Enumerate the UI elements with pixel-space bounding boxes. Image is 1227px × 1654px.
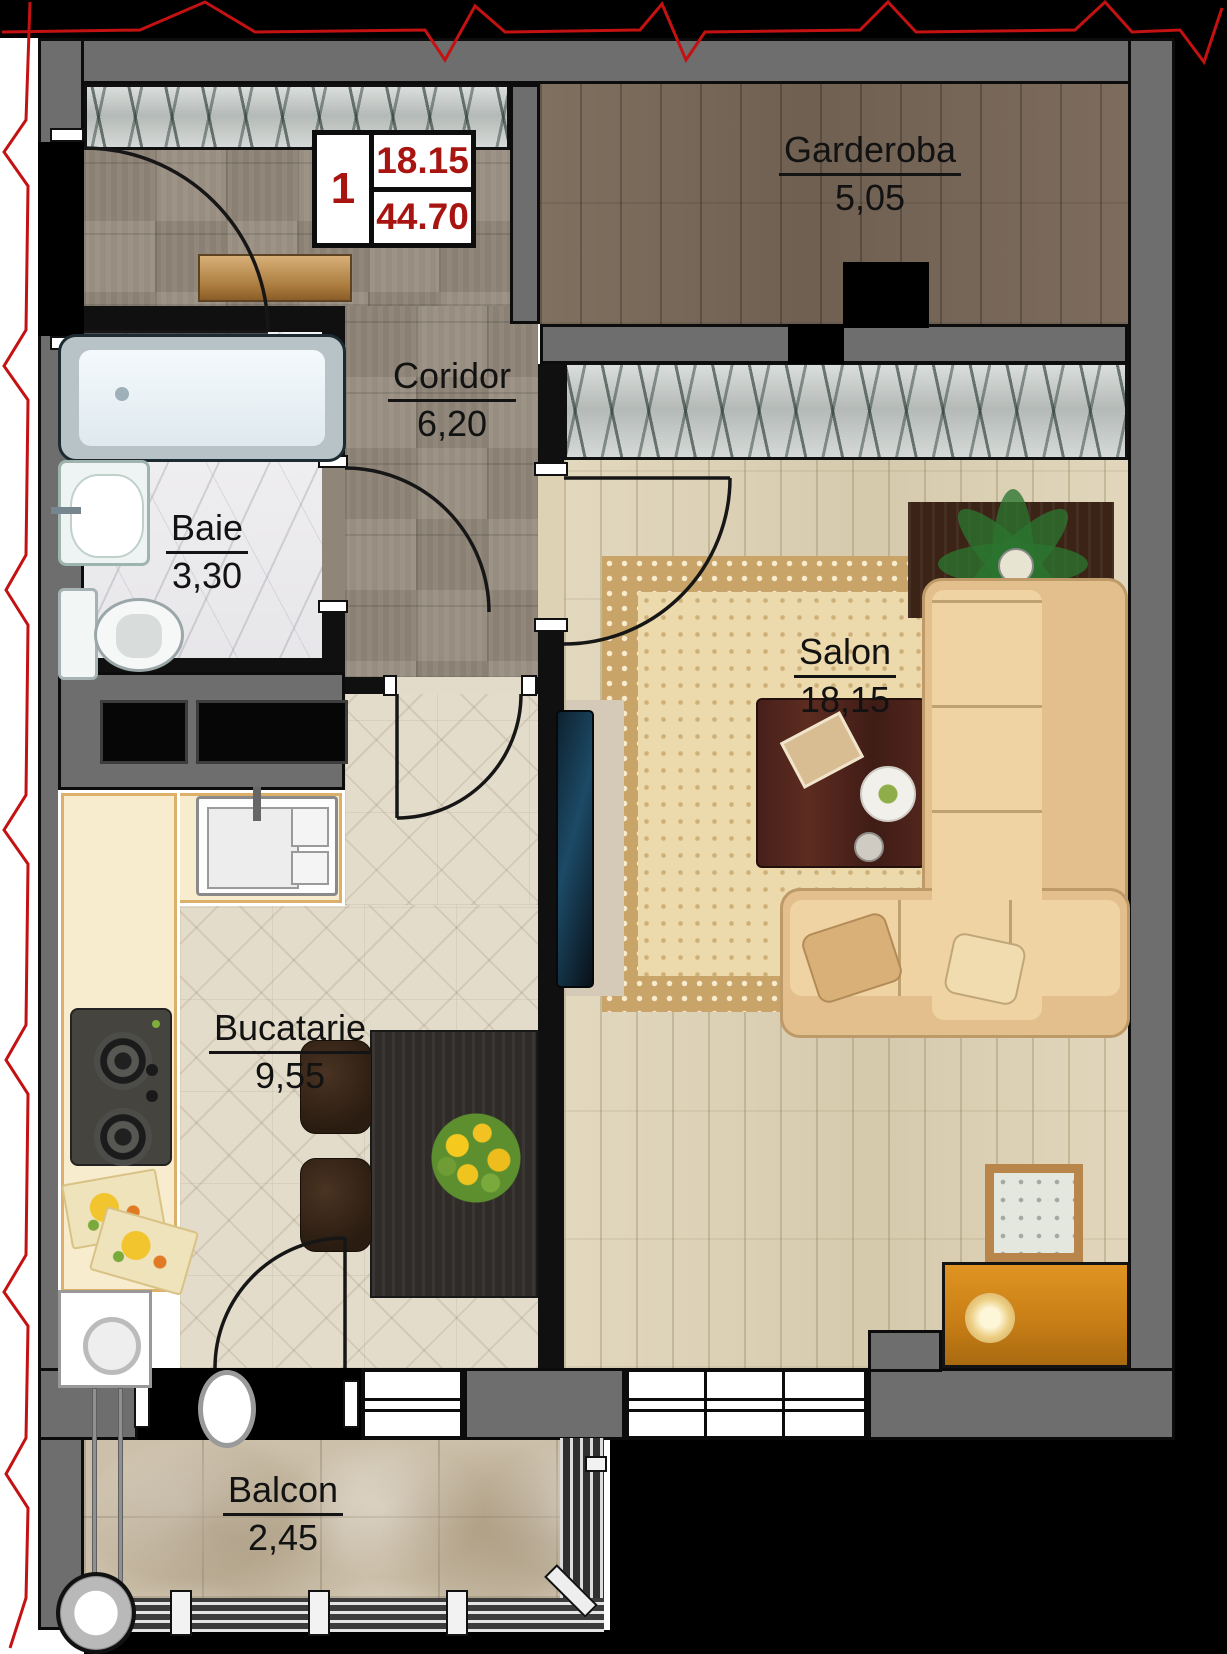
wall-top <box>38 38 1175 84</box>
backdrop-bottom <box>84 1630 610 1654</box>
label-balcon: Balcon 2,45 <box>153 1470 413 1559</box>
drain-icon <box>56 1572 136 1654</box>
bucatarie-door-jamb-left <box>383 675 397 696</box>
coffee-table-icon <box>756 698 926 868</box>
room-name: Baie <box>166 508 248 554</box>
railing-post-top-right <box>585 1456 607 1472</box>
console-icon <box>198 254 352 302</box>
wall-garderoba-left <box>510 84 540 324</box>
salon-window-icon <box>625 1368 868 1440</box>
drain-pipe-line-2 <box>118 1388 123 1588</box>
stove-icon <box>70 1008 172 1166</box>
side-table-icon <box>985 1164 1083 1262</box>
room-name: Coridor <box>388 356 516 402</box>
entrance-opening <box>38 142 84 336</box>
toilet-seat <box>116 614 162 658</box>
legend-area-top: 18.15 <box>374 135 471 192</box>
room-area: 3,30 <box>77 556 337 596</box>
label-bucatarie: Bucatarie 9,55 <box>160 1008 420 1097</box>
backdrop-right <box>1175 0 1227 1654</box>
backdrop-bottom-right <box>610 1440 1227 1654</box>
drain-pipe-line-1 <box>92 1388 97 1588</box>
salon-door-gap <box>538 476 564 618</box>
label-coridor: Coridor 6,20 <box>322 356 582 445</box>
book-icon <box>780 711 864 789</box>
garderoba-door-gap <box>788 324 844 364</box>
label-salon: Salon 18,15 <box>715 632 975 721</box>
room-area: 5,05 <box>740 178 1000 218</box>
bucatarie-window-icon <box>361 1368 464 1440</box>
lamp-icon <box>965 1293 1015 1343</box>
railing-post-2 <box>170 1590 192 1636</box>
cup-icon <box>854 832 884 862</box>
entrance-jamb-top <box>50 128 84 142</box>
room-area: 6,20 <box>322 404 582 444</box>
dresser-icon <box>942 1262 1130 1368</box>
kitchen-sink-icon <box>196 796 338 896</box>
salon-wardrobe-hatch-icon <box>564 362 1128 460</box>
toilet-tank-icon <box>58 588 98 680</box>
wall-baie-top <box>58 306 345 332</box>
wall-bottom-right <box>868 1368 1175 1440</box>
shaft-icon-small <box>100 700 188 764</box>
plate-icon <box>860 766 916 822</box>
bucatarie-floor-upper <box>345 694 538 905</box>
washing-machine-icon <box>58 1290 152 1388</box>
tv-icon <box>556 710 594 988</box>
bathtub-icon <box>58 334 346 462</box>
wall-bottom-mid <box>464 1368 625 1440</box>
legend-unit-number: 1 <box>317 135 374 243</box>
flower-bouquet-icon <box>424 1106 528 1210</box>
railing-icon <box>84 1598 604 1632</box>
shaft-icon-large <box>196 700 348 764</box>
railing-post-4 <box>446 1590 468 1636</box>
legend-area-bottom: 44.70 <box>374 192 471 244</box>
legend-box: 1 18.15 44.70 <box>312 130 476 248</box>
label-baie: Baie 3,30 <box>77 508 337 597</box>
room-name: Salon <box>794 632 896 678</box>
room-area: 18,15 <box>715 680 975 720</box>
room-name: Garderoba <box>779 130 961 176</box>
railing-post-3 <box>308 1590 330 1636</box>
wall-baie-bottom <box>58 658 345 672</box>
balcon-door-jamb-right <box>343 1380 359 1428</box>
salon-door-jamb-top <box>534 462 568 476</box>
garderoba-wall-stub <box>843 262 929 328</box>
label-garderoba: Garderoba 5,05 <box>740 130 1000 219</box>
salon-door-jamb-bottom <box>534 618 568 632</box>
bucatarie-door-gap <box>397 677 521 694</box>
wall-step-right <box>868 1330 942 1372</box>
room-name: Bucatarie <box>209 1008 371 1054</box>
wall-right <box>1128 38 1175 1440</box>
floor-plan: Garderoba 5,05 Coridor 6,20 Baie 3,30 Sa… <box>0 0 1227 1654</box>
pipe-column-icon <box>198 1370 256 1448</box>
chair-icon-2 <box>300 1158 372 1252</box>
backdrop-top <box>0 0 1227 38</box>
room-area: 2,45 <box>153 1518 413 1558</box>
baie-door-jamb-bottom <box>318 600 348 613</box>
room-name: Balcon <box>223 1470 343 1516</box>
bucatarie-door-jamb-right <box>521 675 537 696</box>
room-area: 9,55 <box>160 1056 420 1096</box>
